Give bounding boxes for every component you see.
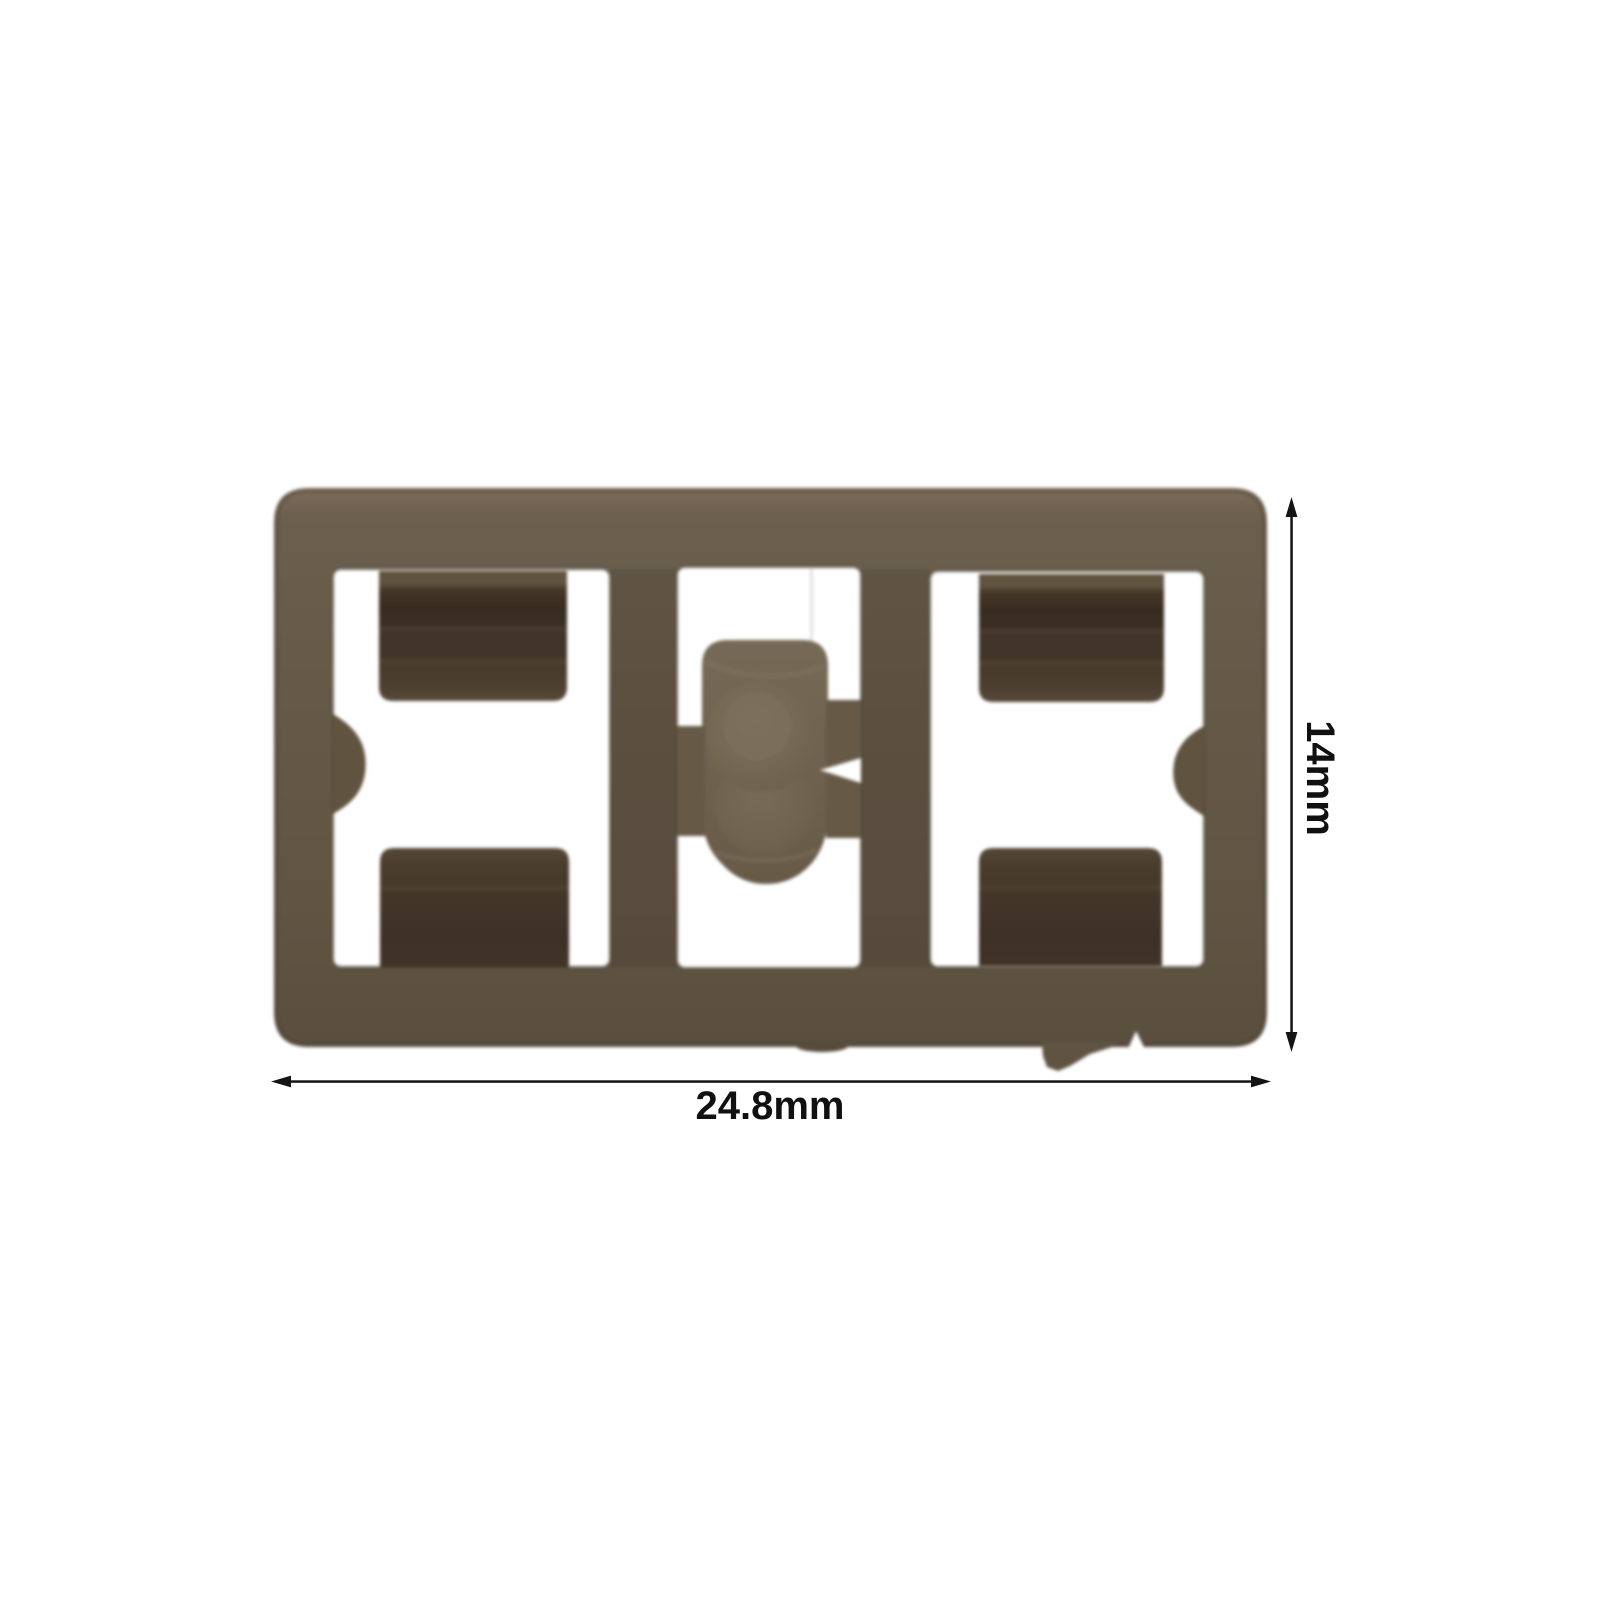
svg-text:24.8mm: 24.8mm xyxy=(696,1084,845,1128)
svg-text:14mm: 14mm xyxy=(1298,720,1342,836)
